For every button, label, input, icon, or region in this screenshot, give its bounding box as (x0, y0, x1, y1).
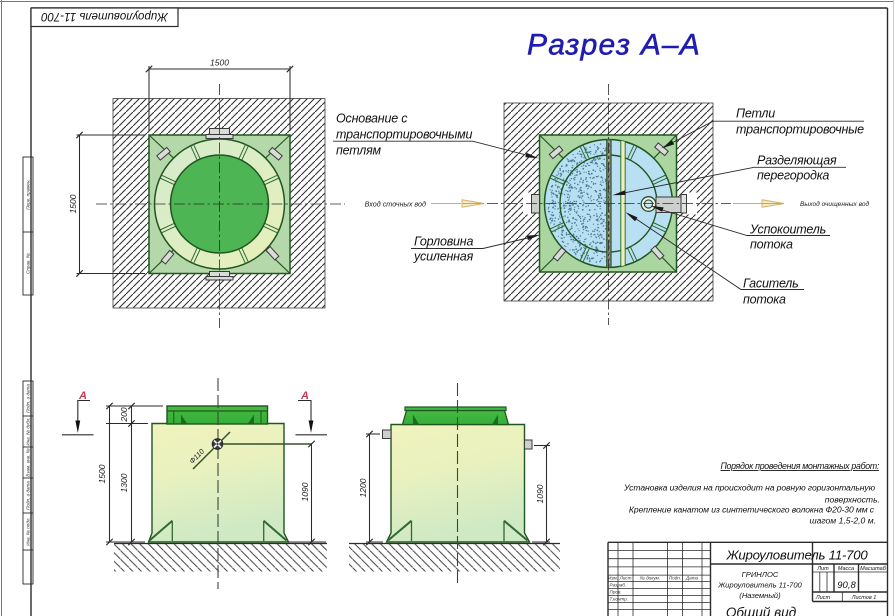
svg-text:Подп. и дата: Подп. и дата (26, 384, 31, 413)
svg-text:Дата: Дата (685, 576, 699, 581)
svg-text:1200: 1200 (358, 478, 368, 497)
svg-text:Порядок проведения монтажных р: Порядок проведения монтажных работ: (720, 461, 879, 471)
svg-text:Масса: Масса (838, 566, 854, 572)
svg-text:Перв. примен.: Перв. примен. (26, 179, 31, 210)
svg-text:№ докум.: № докум. (640, 576, 660, 581)
svg-text:Успокоитель: Успокоитель (749, 223, 826, 237)
svg-text:Изм.: Изм. (608, 576, 618, 581)
svg-text:1500: 1500 (210, 58, 229, 68)
svg-text:Т.контр.: Т.контр. (610, 597, 629, 602)
svg-text:200: 200 (119, 407, 129, 422)
svg-text:Инв. № подл.: Инв. № подл. (26, 517, 31, 546)
svg-text:Вход сточных вод: Вход сточных вод (365, 200, 426, 209)
svg-text:Разраб.: Разраб. (610, 583, 627, 588)
svg-text:петлям: петлям (336, 144, 382, 158)
svg-text:транспортировочные: транспортировочные (736, 123, 864, 137)
svg-text:Выход очищенных вод: Выход очищенных вод (800, 200, 870, 208)
svg-text:Основание с: Основание с (336, 112, 408, 126)
svg-text:Лит: Лит (816, 566, 829, 572)
svg-text:Жироуловитель 11-700: Жироуловитель 11-700 (41, 10, 169, 22)
svg-text:Листов 1: Листов 1 (851, 595, 877, 601)
svg-text:Масштаб: Масштаб (860, 566, 887, 572)
svg-text:1500: 1500 (97, 464, 107, 483)
svg-text:транспортировочными: транспортировочными (336, 128, 473, 142)
svg-text:Взам. инв. №: Взам. инв. № (26, 448, 31, 476)
svg-text:Разрез А–А: Разрез А–А (527, 29, 701, 62)
svg-text:Гаситель: Гаситель (743, 277, 799, 291)
svg-text:Подп.: Подп. (669, 576, 681, 581)
svg-text:Справ. №: Справ. № (26, 253, 31, 274)
svg-text:Лист: Лист (815, 595, 831, 601)
svg-text:потока: потока (743, 293, 786, 307)
svg-text:ГРИНЛОС: ГРИНЛОС (742, 570, 779, 579)
svg-text:90,8: 90,8 (837, 580, 856, 591)
svg-text:1090: 1090 (300, 482, 310, 501)
svg-text:Жироуловитель 11-700: Жироуловитель 11-700 (725, 548, 868, 563)
svg-text:потока: потока (750, 238, 793, 252)
svg-text:1500: 1500 (68, 194, 78, 213)
svg-text:1090: 1090 (535, 484, 545, 503)
svg-text:усиленная: усиленная (413, 250, 474, 264)
svg-text:Петли: Петли (736, 107, 775, 121)
svg-text:Крепление канатом из синтетиче: Крепление канатом из синтетического воло… (629, 505, 875, 515)
svg-text:Установка изделия на происходи: Установка изделия на происходит на ровну… (623, 483, 876, 493)
svg-text:Жироуловитель 11-700: Жироуловитель 11-700 (717, 581, 802, 590)
svg-text:Общий вид: Общий вид (726, 605, 797, 616)
svg-text:(Наземный): (Наземный) (739, 591, 781, 600)
svg-text:шагом 1,5-2,0 м.: шагом 1,5-2,0 м. (809, 516, 876, 526)
svg-text:Разделяющая: Разделяющая (757, 154, 837, 168)
svg-text:Инв. № дубл.: Инв. № дубл. (26, 417, 31, 445)
svg-text:Пров.: Пров. (610, 590, 622, 595)
svg-text:перегородка: перегородка (757, 169, 829, 183)
svg-text:Лист: Лист (619, 576, 632, 581)
svg-text:Горловина: Горловина (414, 235, 473, 249)
svg-text:Подп. и дата: Подп. и дата (26, 481, 31, 510)
svg-text:поверхность.: поверхность. (825, 495, 880, 505)
svg-text:1300: 1300 (119, 473, 129, 492)
